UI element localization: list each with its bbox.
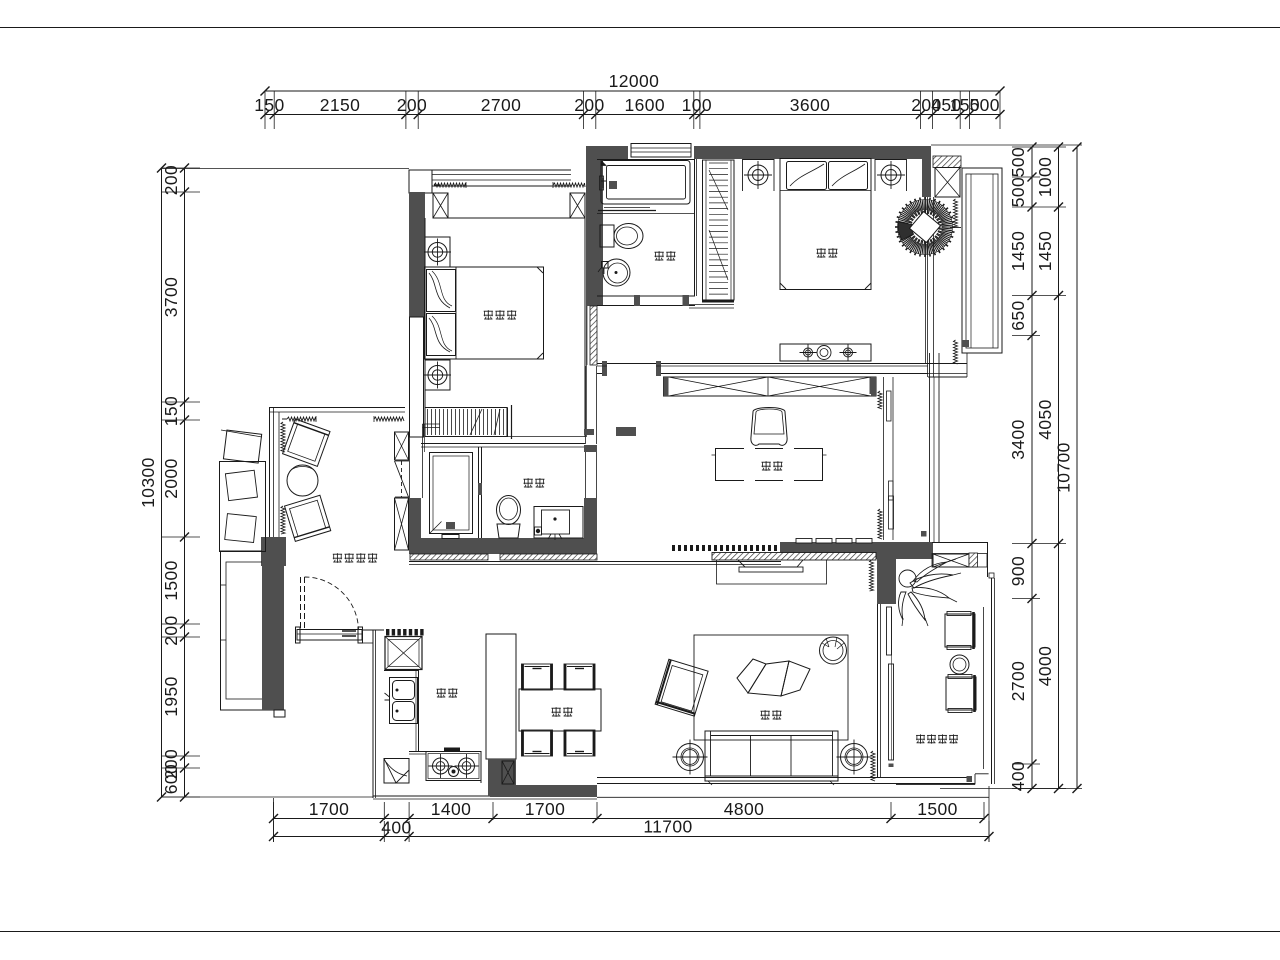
svg-text:10700: 10700 — [1054, 442, 1074, 493]
svg-text:650: 650 — [1008, 300, 1028, 330]
svg-text:1600: 1600 — [625, 95, 666, 115]
svg-text:2000: 2000 — [161, 458, 181, 499]
svg-text:4050: 4050 — [1035, 399, 1055, 440]
svg-text:11700: 11700 — [643, 817, 692, 837]
svg-text:900: 900 — [1008, 556, 1028, 586]
svg-text:200: 200 — [397, 95, 427, 115]
svg-text:1450: 1450 — [1008, 231, 1028, 272]
svg-text:100: 100 — [682, 95, 712, 115]
svg-text:4000: 4000 — [1035, 646, 1055, 687]
svg-text:500: 500 — [1008, 147, 1028, 177]
svg-text:150: 150 — [161, 396, 181, 426]
svg-text:2700: 2700 — [1008, 661, 1028, 702]
svg-text:1950: 1950 — [161, 676, 181, 717]
svg-text:1000: 1000 — [1035, 157, 1055, 198]
svg-text:200: 200 — [161, 165, 181, 195]
svg-text:2150: 2150 — [320, 95, 361, 115]
svg-text:10300: 10300 — [138, 457, 158, 508]
svg-text:4800: 4800 — [724, 799, 765, 819]
svg-text:400: 400 — [381, 818, 411, 838]
svg-text:1700: 1700 — [525, 799, 566, 819]
svg-text:1500: 1500 — [917, 799, 958, 819]
svg-text:3700: 3700 — [161, 277, 181, 318]
svg-text:1700: 1700 — [309, 799, 350, 819]
svg-text:200: 200 — [574, 95, 604, 115]
svg-text:400: 400 — [1008, 761, 1028, 791]
svg-text:200: 200 — [161, 749, 181, 779]
svg-text:200: 200 — [161, 615, 181, 645]
svg-text:500: 500 — [969, 95, 999, 115]
svg-text:150: 150 — [254, 95, 284, 115]
svg-text:1400: 1400 — [431, 799, 472, 819]
svg-text:12000: 12000 — [609, 71, 660, 91]
svg-text:2700: 2700 — [481, 95, 522, 115]
svg-text:1500: 1500 — [161, 560, 181, 601]
svg-text:1450: 1450 — [1035, 231, 1055, 272]
svg-text:3600: 3600 — [790, 95, 831, 115]
svg-text:3400: 3400 — [1008, 419, 1028, 460]
svg-text:500: 500 — [1008, 177, 1028, 207]
